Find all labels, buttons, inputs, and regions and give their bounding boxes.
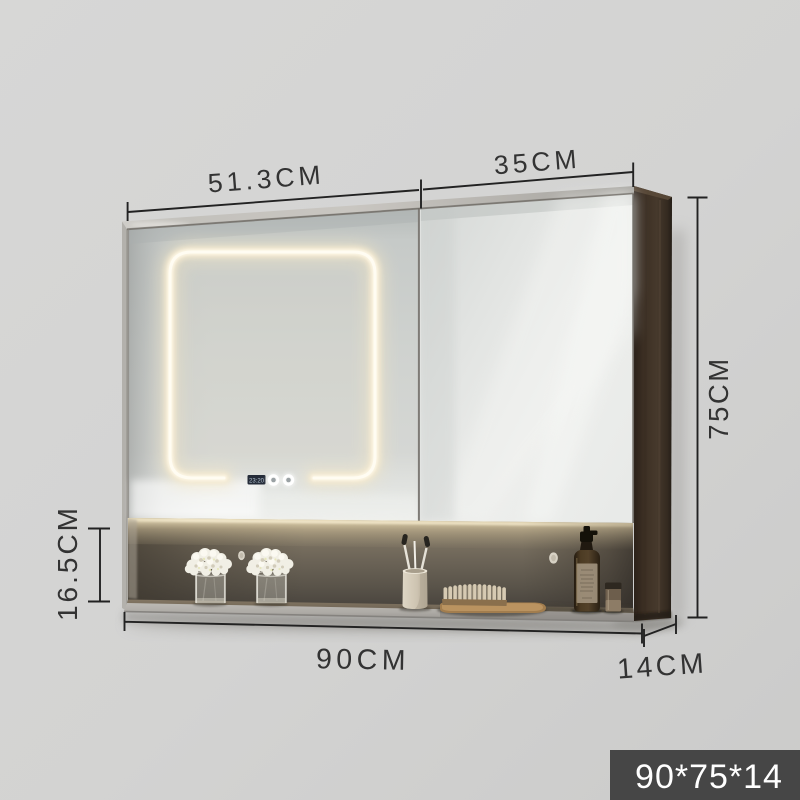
svg-text:90*75*14: 90*75*14: [635, 758, 783, 796]
svg-text:90CM: 90CM: [316, 643, 411, 677]
svg-text:14CM: 14CM: [616, 647, 708, 685]
svg-text:16.5CM: 16.5CM: [52, 505, 83, 621]
svg-text:75CM: 75CM: [703, 356, 734, 439]
svg-text:23:20: 23:20: [249, 478, 265, 484]
